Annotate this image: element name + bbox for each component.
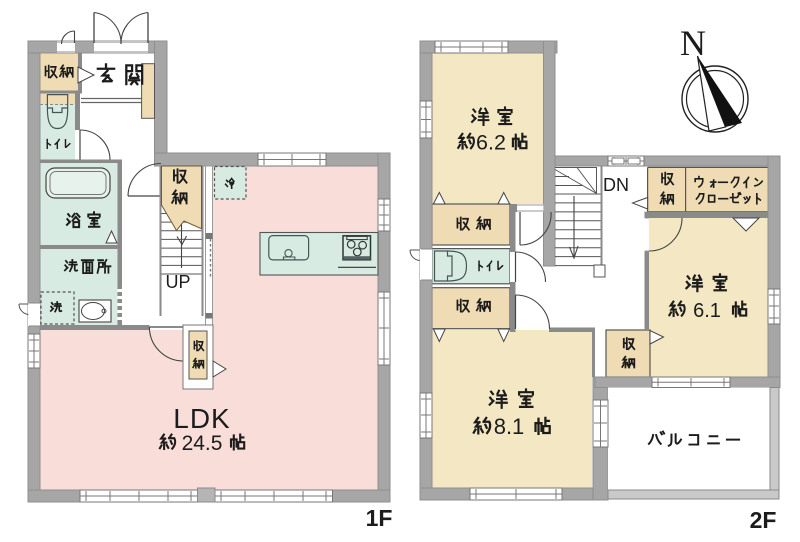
svg-text:8.1: 8.1 [494,414,525,439]
svg-text:24.5: 24.5 [182,432,223,455]
svg-text:UP: UP [165,272,190,292]
svg-text:N: N [680,23,706,63]
svg-text:6.2: 6.2 [476,131,506,155]
svg-text:LDK: LDK [173,403,230,434]
svg-text:2F: 2F [750,507,777,533]
svg-text:1F: 1F [366,505,393,531]
svg-text:6.1: 6.1 [693,300,721,322]
svg-text:DN: DN [603,175,629,195]
